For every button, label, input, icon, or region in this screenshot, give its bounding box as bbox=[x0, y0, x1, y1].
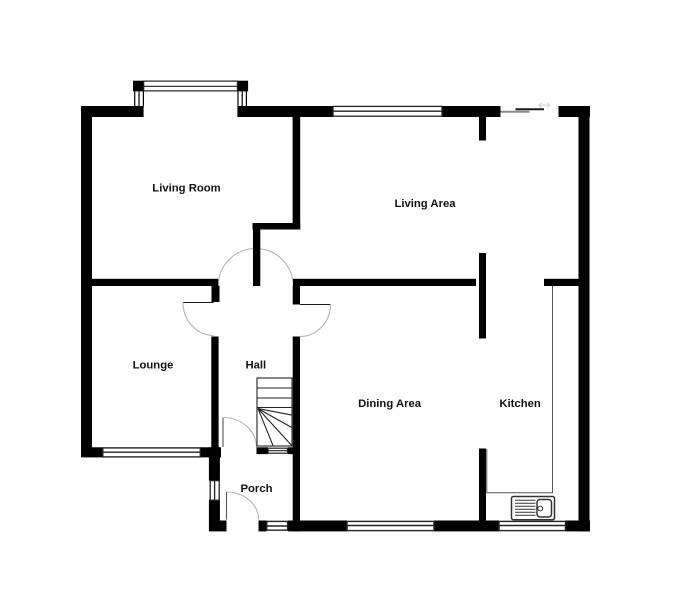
svg-text:Kitchen: Kitchen bbox=[499, 398, 541, 410]
svg-text:Porch: Porch bbox=[240, 483, 272, 495]
svg-text:Dining Area: Dining Area bbox=[358, 398, 422, 410]
svg-text:Living Area: Living Area bbox=[394, 198, 456, 210]
svg-text:Living Room: Living Room bbox=[152, 182, 220, 194]
svg-text:Lounge: Lounge bbox=[133, 360, 174, 372]
svg-text:Hall: Hall bbox=[245, 360, 266, 372]
